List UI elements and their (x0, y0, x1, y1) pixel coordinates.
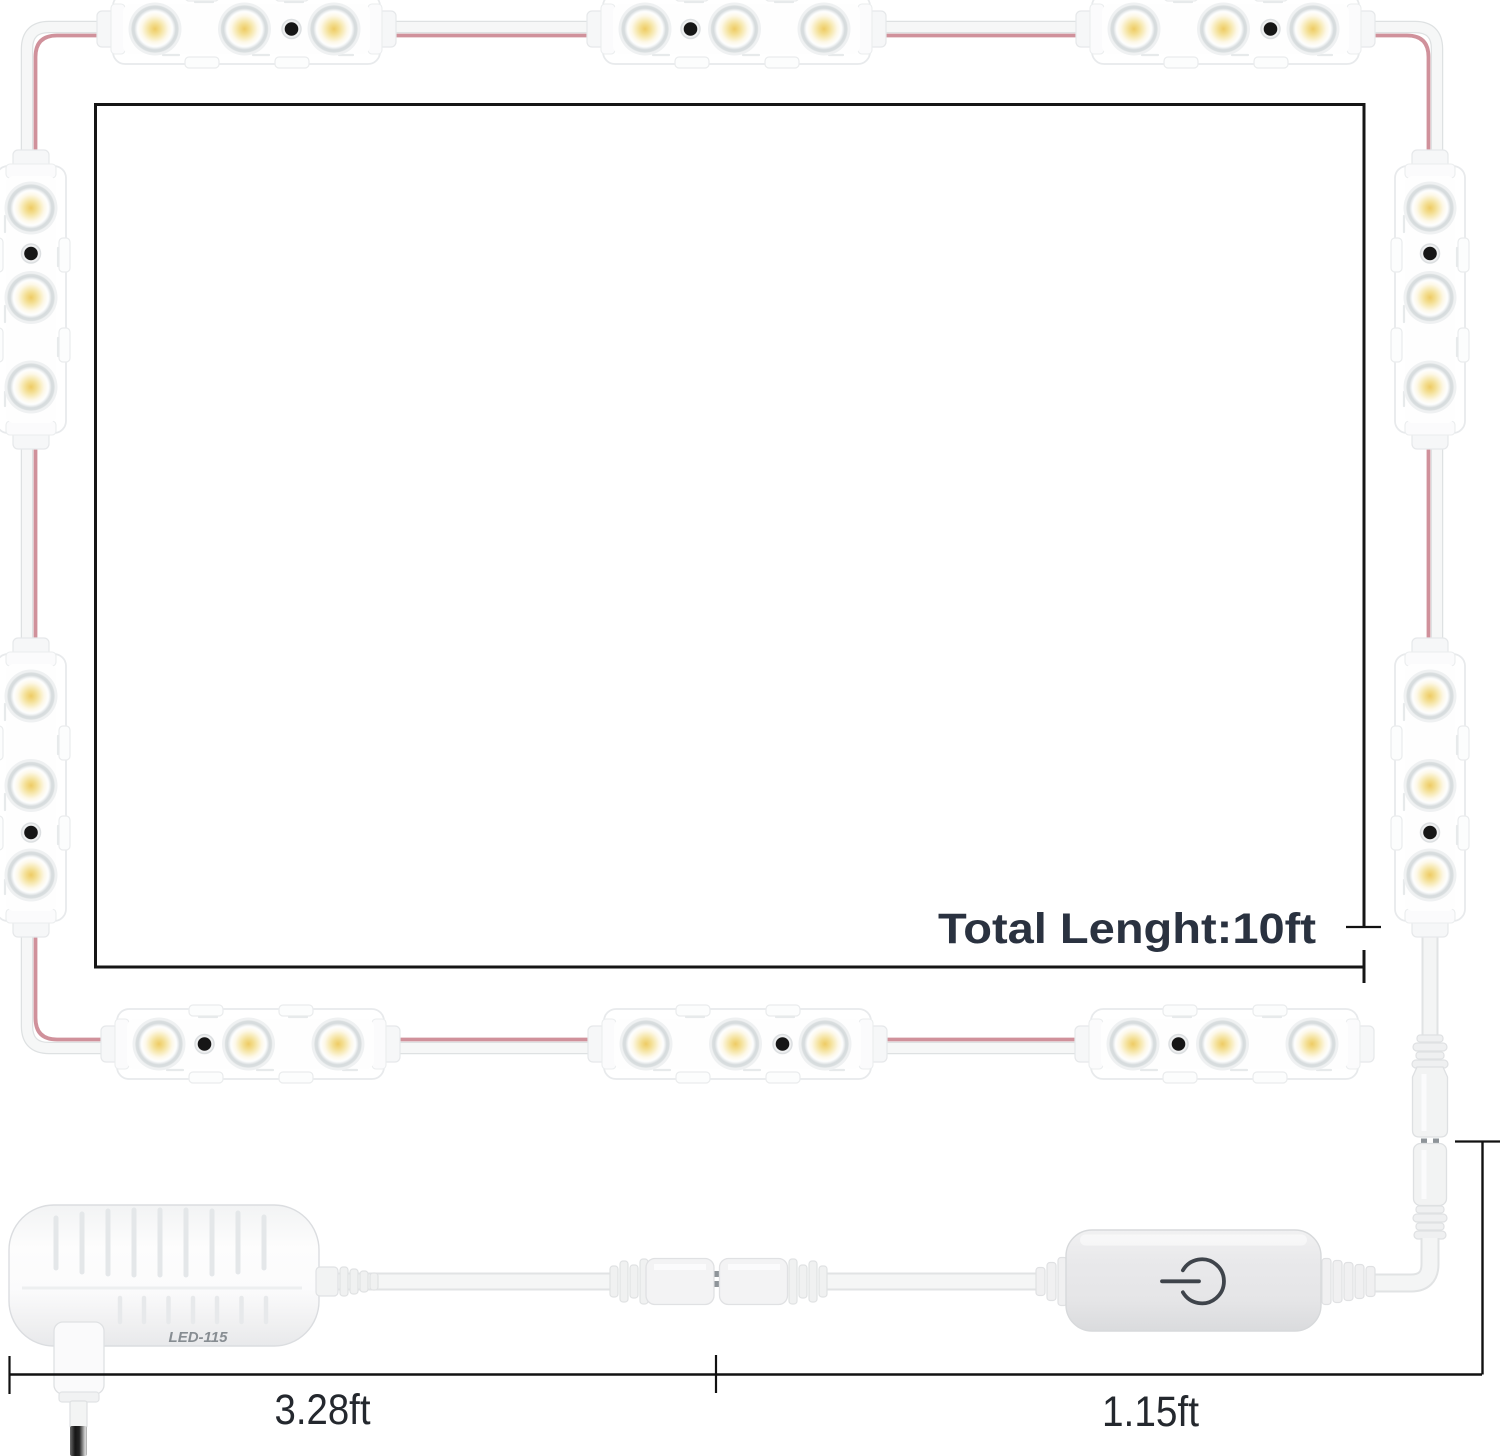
svg-text:Total Lenght:10ft: Total Lenght:10ft (938, 906, 1316, 953)
svg-text:1.15ft: 1.15ft (1102, 1388, 1199, 1436)
svg-text:LED-115: LED-115 (169, 1329, 229, 1346)
svg-text:3.28ft: 3.28ft (275, 1386, 371, 1434)
